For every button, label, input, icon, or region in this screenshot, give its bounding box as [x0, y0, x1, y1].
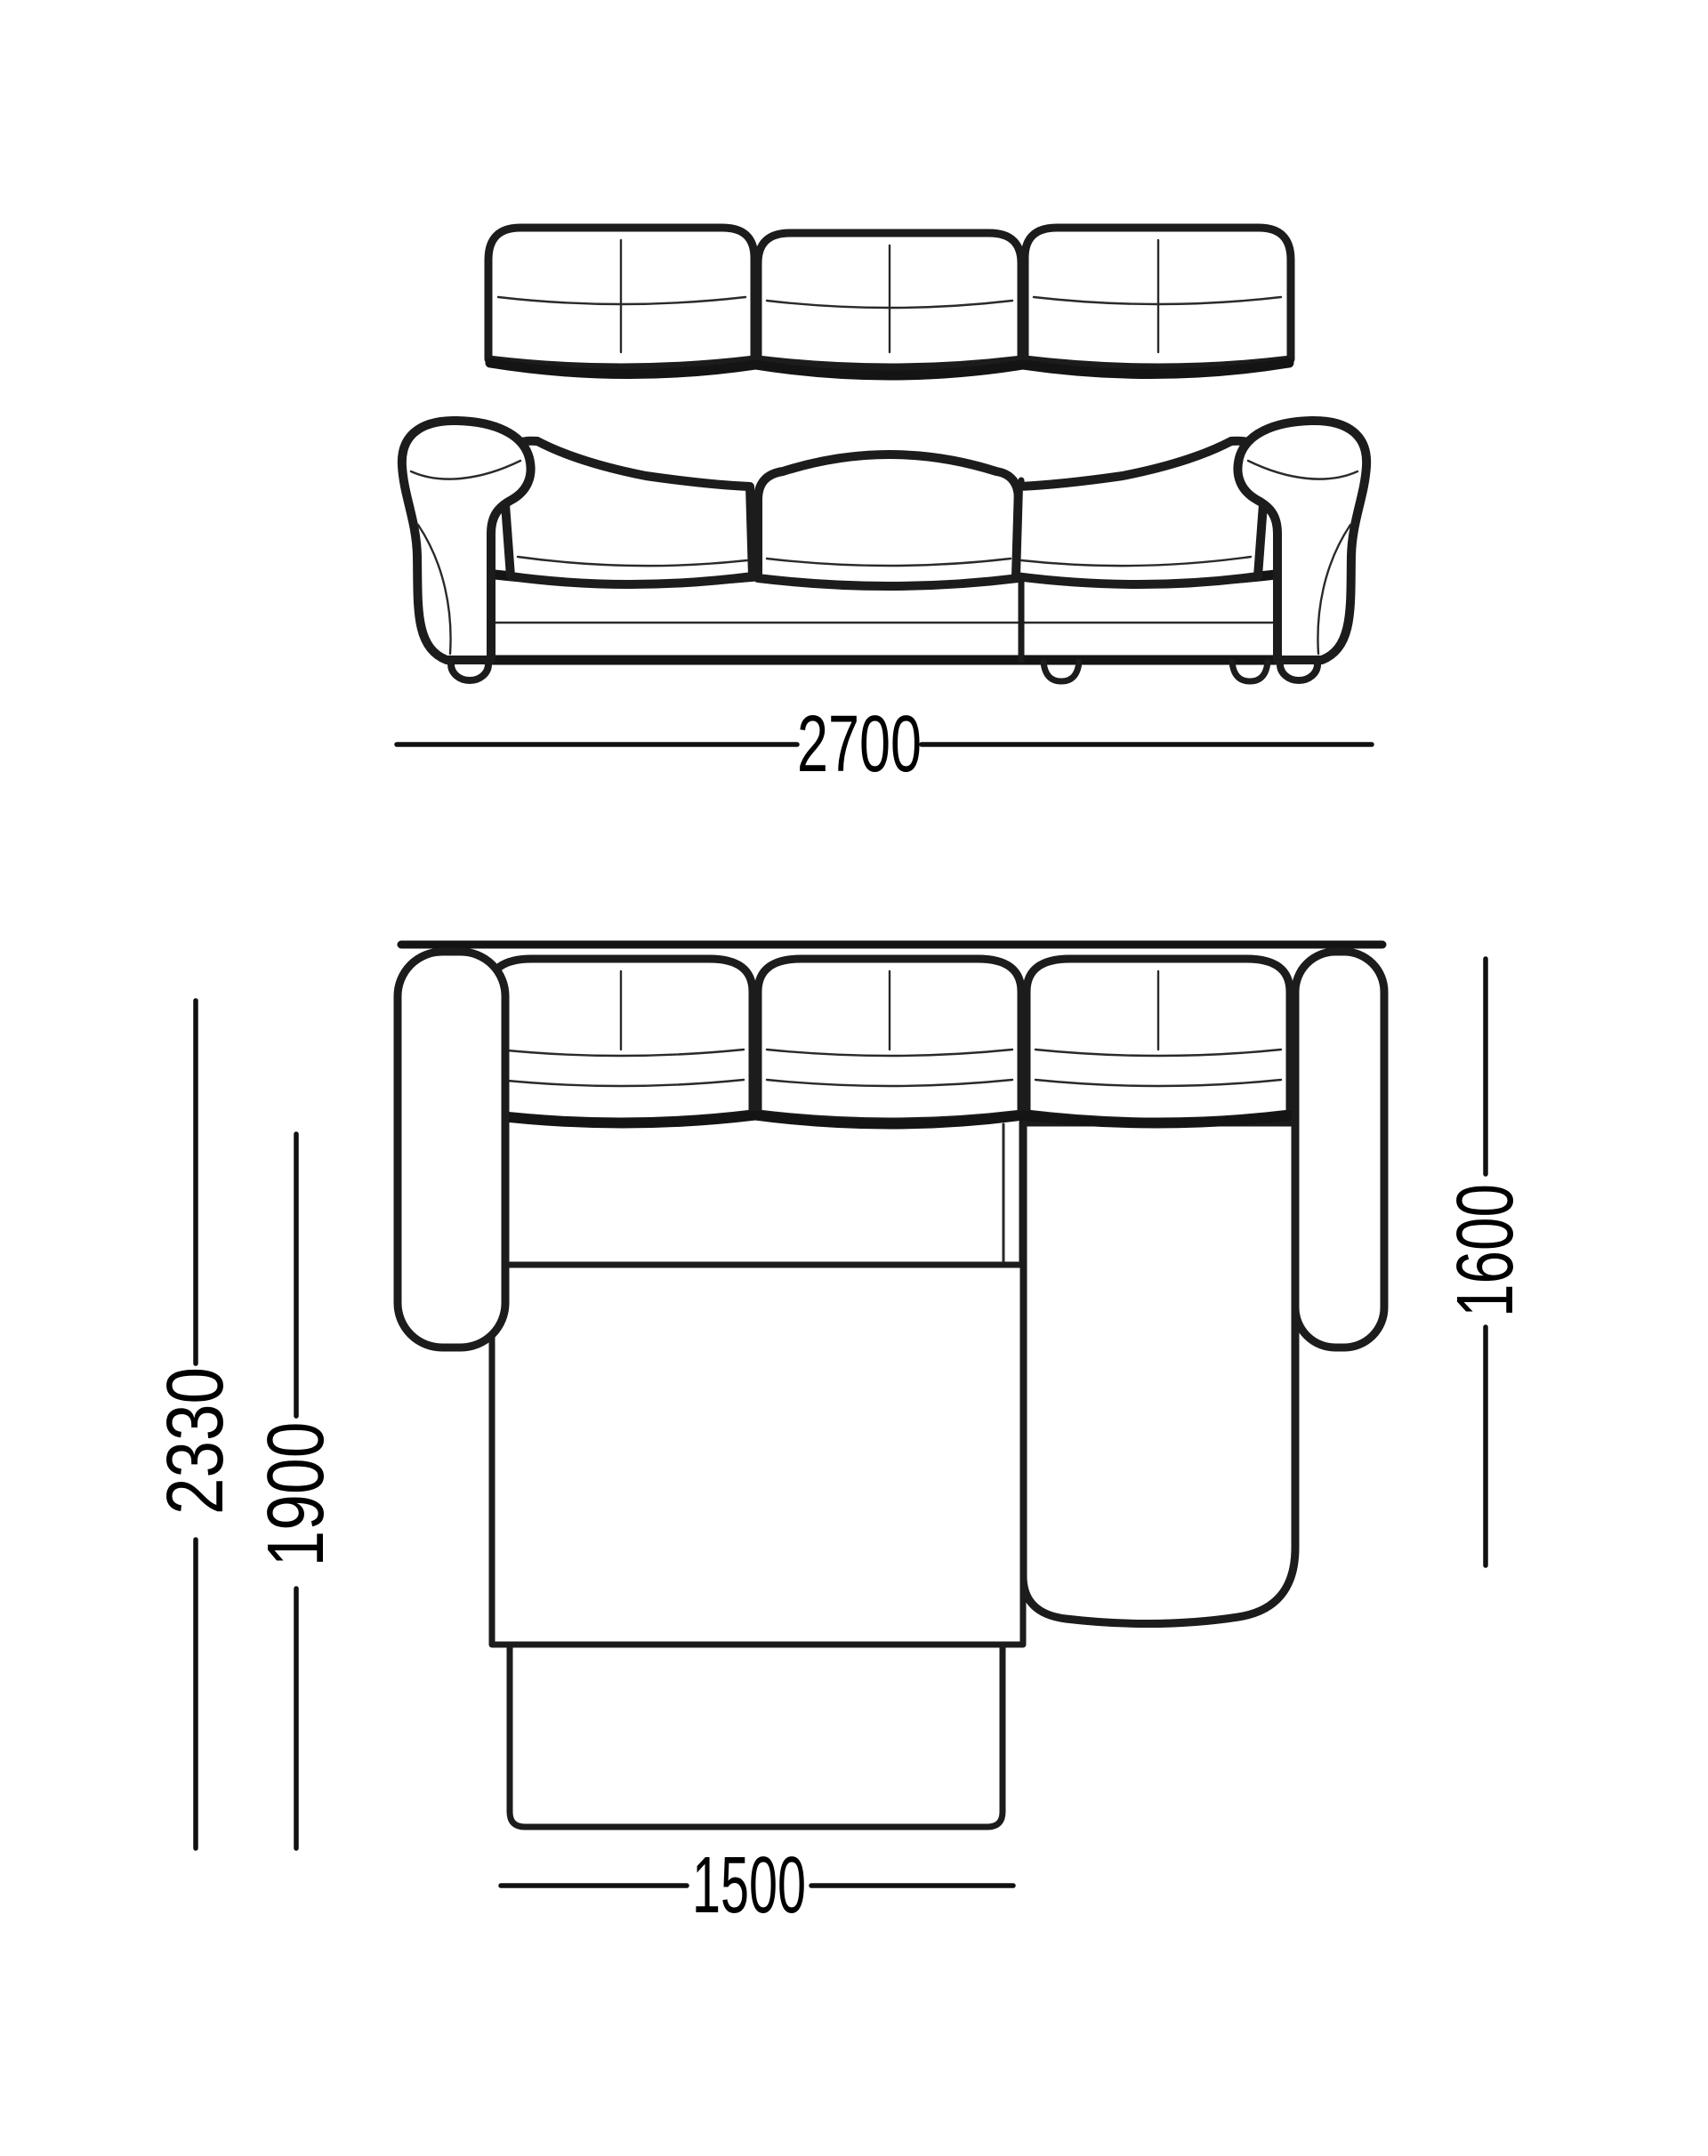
- sofa-dimension-diagram: 2700: [0, 0, 1708, 2156]
- dimension-bed-width: 1500: [501, 1841, 1013, 1930]
- dimension-chaise-depth: 1600: [1441, 959, 1530, 1565]
- diagram-canvas: 2700: [0, 0, 1708, 2156]
- plan-armrest-left: [398, 952, 505, 1347]
- plan-chaise-section: [1023, 1122, 1295, 1624]
- plan-bed-section: [492, 1265, 1023, 1645]
- front-left-arm-unit: [402, 421, 753, 680]
- front-view: 2700: [397, 228, 1372, 789]
- dimension-label-chaise-depth: 1600: [1441, 1184, 1530, 1317]
- plan-view: 2330 1900 1600 1500: [151, 945, 1530, 1930]
- front-seat-middle: [758, 455, 1019, 586]
- dimension-label-total-depth: 2330: [151, 1367, 240, 1515]
- plan-back-cushions: [488, 959, 1290, 1124]
- dimension-label-bed-width: 1500: [692, 1841, 806, 1930]
- dimension-bed-depth: 1900: [252, 1134, 341, 1848]
- dimension-total-width: 2700: [397, 700, 1372, 789]
- dimension-label-total-width: 2700: [797, 700, 922, 789]
- dimension-label-bed-depth: 1900: [252, 1422, 341, 1567]
- plan-armrest-right: [1295, 952, 1384, 1347]
- dimension-total-depth: 2330: [151, 1001, 240, 1848]
- plan-ottoman-section: [510, 1645, 1003, 1827]
- front-back-cushions: [488, 228, 1291, 375]
- front-right-arm-unit: [1016, 421, 1366, 680]
